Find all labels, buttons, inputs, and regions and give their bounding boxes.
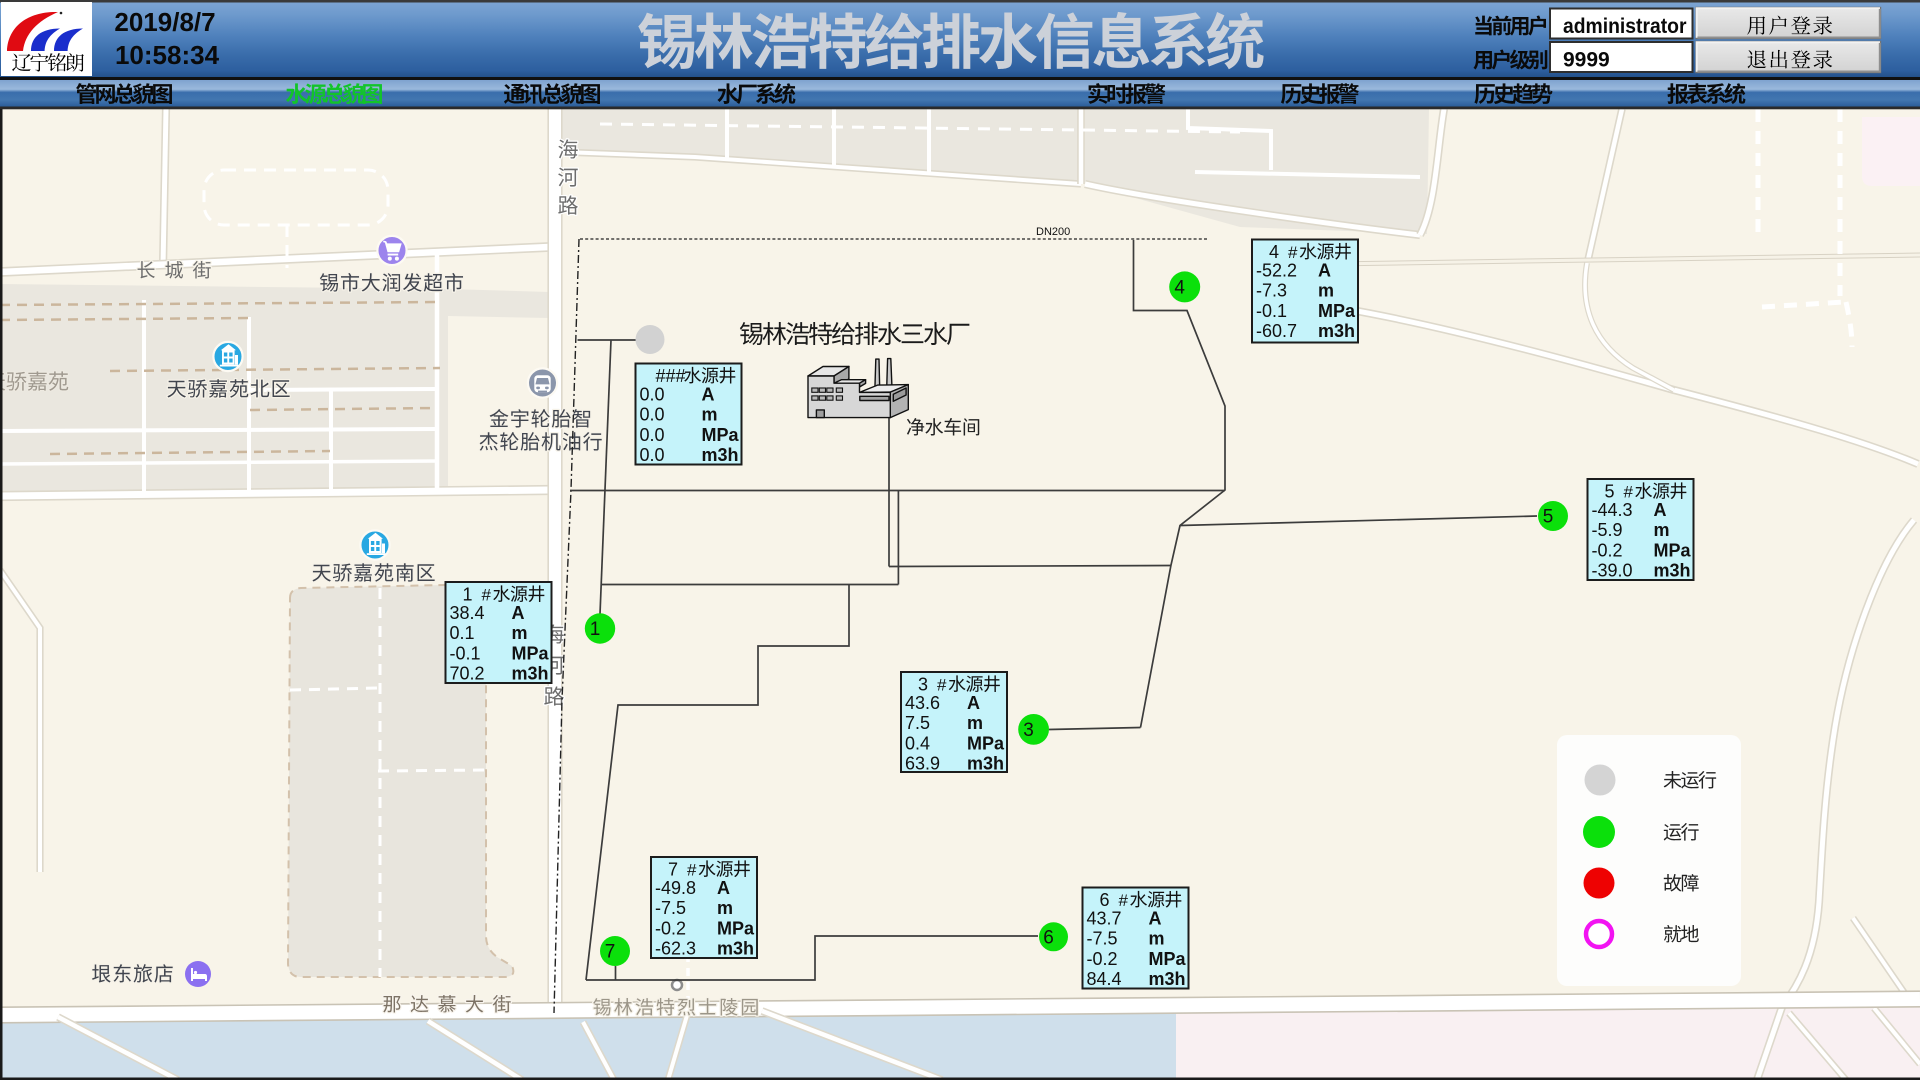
svg-text:MPa: MPa	[1149, 949, 1187, 969]
svg-text:A: A	[1654, 500, 1667, 520]
svg-text:-0.2: -0.2	[1087, 949, 1118, 969]
svg-text:administrator: administrator	[1563, 15, 1687, 38]
svg-text:#: #	[937, 676, 947, 695]
svg-text:###: ###	[656, 366, 686, 386]
svg-text:m: m	[1149, 929, 1165, 949]
svg-text:0.0: 0.0	[640, 405, 665, 425]
svg-text:-0.2: -0.2	[655, 918, 686, 938]
svg-text:m3h: m3h	[702, 445, 739, 465]
svg-text:10:58:34: 10:58:34	[115, 40, 220, 70]
svg-text:m: m	[702, 405, 718, 425]
svg-text:0.0: 0.0	[640, 385, 665, 405]
svg-text:-62.3: -62.3	[655, 939, 696, 959]
svg-text:m3h: m3h	[1654, 561, 1691, 581]
svg-text:-0.1: -0.1	[1256, 301, 1287, 321]
svg-text:m: m	[512, 623, 528, 643]
svg-text:-7.5: -7.5	[655, 898, 686, 918]
svg-text:4: 4	[1269, 242, 1279, 262]
svg-text:0.0: 0.0	[640, 425, 665, 445]
svg-text:9999: 9999	[1563, 49, 1610, 72]
svg-text:-60.7: -60.7	[1256, 321, 1297, 341]
svg-text:m3h: m3h	[1149, 969, 1186, 989]
svg-text:A: A	[512, 603, 525, 623]
svg-text:#: #	[482, 586, 492, 605]
svg-text:MPa: MPa	[702, 425, 740, 445]
svg-text:m3h: m3h	[512, 664, 549, 684]
svg-text:43.6: 43.6	[905, 693, 940, 713]
svg-text:MPa: MPa	[1318, 301, 1356, 321]
svg-text:-49.8: -49.8	[655, 878, 696, 898]
svg-text:7: 7	[668, 860, 678, 880]
svg-text:#: #	[1288, 243, 1298, 262]
svg-text:-0.1: -0.1	[450, 643, 481, 663]
svg-text:-5.9: -5.9	[1592, 520, 1623, 540]
svg-text:-7.5: -7.5	[1087, 929, 1118, 949]
svg-text:2019/8/7: 2019/8/7	[114, 7, 215, 37]
svg-text:38.4: 38.4	[450, 603, 485, 623]
svg-text:7: 7	[605, 942, 616, 963]
svg-text:A: A	[967, 693, 980, 713]
svg-text:MPa: MPa	[1654, 540, 1692, 560]
svg-text:0.0: 0.0	[640, 445, 665, 465]
svg-text:m3h: m3h	[967, 754, 1004, 774]
svg-text:#: #	[1624, 483, 1634, 502]
svg-text:m: m	[717, 898, 733, 918]
svg-text:-52.2: -52.2	[1256, 261, 1297, 281]
svg-text:7.5: 7.5	[905, 713, 930, 733]
svg-text:m3h: m3h	[717, 939, 754, 959]
svg-text:-0.2: -0.2	[1592, 540, 1623, 560]
svg-text:6: 6	[1043, 927, 1054, 948]
svg-text:-7.3: -7.3	[1256, 281, 1287, 301]
svg-text:0.1: 0.1	[450, 623, 475, 643]
svg-text:m: m	[1318, 281, 1334, 301]
svg-text:70.2: 70.2	[450, 664, 485, 684]
svg-text:5: 5	[1543, 507, 1554, 528]
svg-text:DN200: DN200	[1036, 226, 1070, 238]
svg-text:A: A	[717, 878, 730, 898]
svg-text:A: A	[1318, 261, 1331, 281]
svg-text:6: 6	[1100, 890, 1110, 910]
svg-text:#: #	[1119, 891, 1129, 910]
svg-text:#: #	[687, 861, 697, 880]
svg-text:1: 1	[463, 585, 473, 605]
svg-text:m: m	[1654, 520, 1670, 540]
svg-text:3: 3	[918, 675, 928, 695]
svg-text:MPa: MPa	[967, 733, 1005, 753]
svg-text:1: 1	[590, 619, 601, 640]
svg-text:63.9: 63.9	[905, 754, 940, 774]
svg-text:m: m	[967, 713, 983, 733]
svg-text:-39.0: -39.0	[1592, 561, 1633, 581]
svg-text:3: 3	[1023, 720, 1034, 741]
svg-text:43.7: 43.7	[1087, 909, 1122, 929]
svg-text:4: 4	[1174, 277, 1185, 298]
svg-text:A: A	[1149, 909, 1162, 929]
svg-text:5: 5	[1605, 482, 1615, 502]
svg-text:0.4: 0.4	[905, 733, 930, 753]
svg-text:84.4: 84.4	[1087, 969, 1122, 989]
svg-text:A: A	[702, 385, 715, 405]
svg-text:MPa: MPa	[512, 643, 550, 663]
svg-text:MPa: MPa	[717, 918, 755, 938]
svg-text:m3h: m3h	[1318, 321, 1355, 341]
svg-text:-44.3: -44.3	[1592, 500, 1633, 520]
